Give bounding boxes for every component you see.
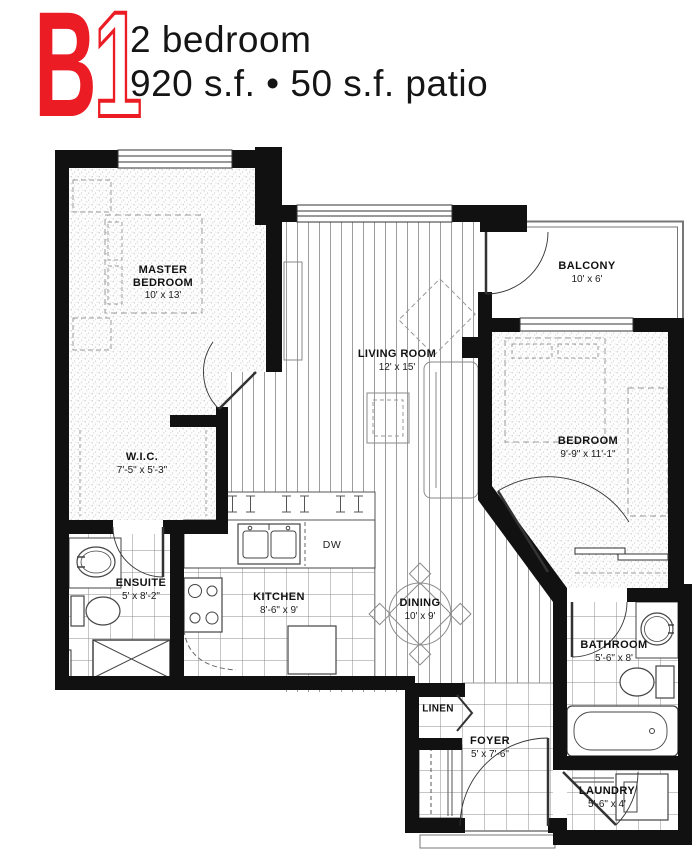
bar-counter	[222, 492, 375, 520]
window-master	[118, 150, 232, 168]
bathtub	[567, 706, 678, 756]
bathroom-toilet	[620, 666, 674, 698]
fridge	[288, 626, 336, 674]
entry-step	[420, 835, 555, 848]
floor-plan-drawing	[0, 0, 697, 856]
wic-floor	[69, 415, 216, 520]
window-living	[297, 205, 452, 222]
bathroom-sink	[636, 602, 678, 658]
floor-plan-page: B 1 2 bedroom 920 s.f. • 50 s.f. patio	[0, 0, 697, 856]
balcony-floor	[492, 222, 682, 318]
kitchen-sink	[238, 524, 300, 564]
stove	[184, 578, 222, 632]
ensuite-toilet	[71, 596, 120, 626]
linen-floor	[419, 697, 462, 738]
window-bedroom	[520, 318, 633, 331]
shower	[93, 640, 170, 678]
ensuite-sink	[69, 538, 121, 588]
